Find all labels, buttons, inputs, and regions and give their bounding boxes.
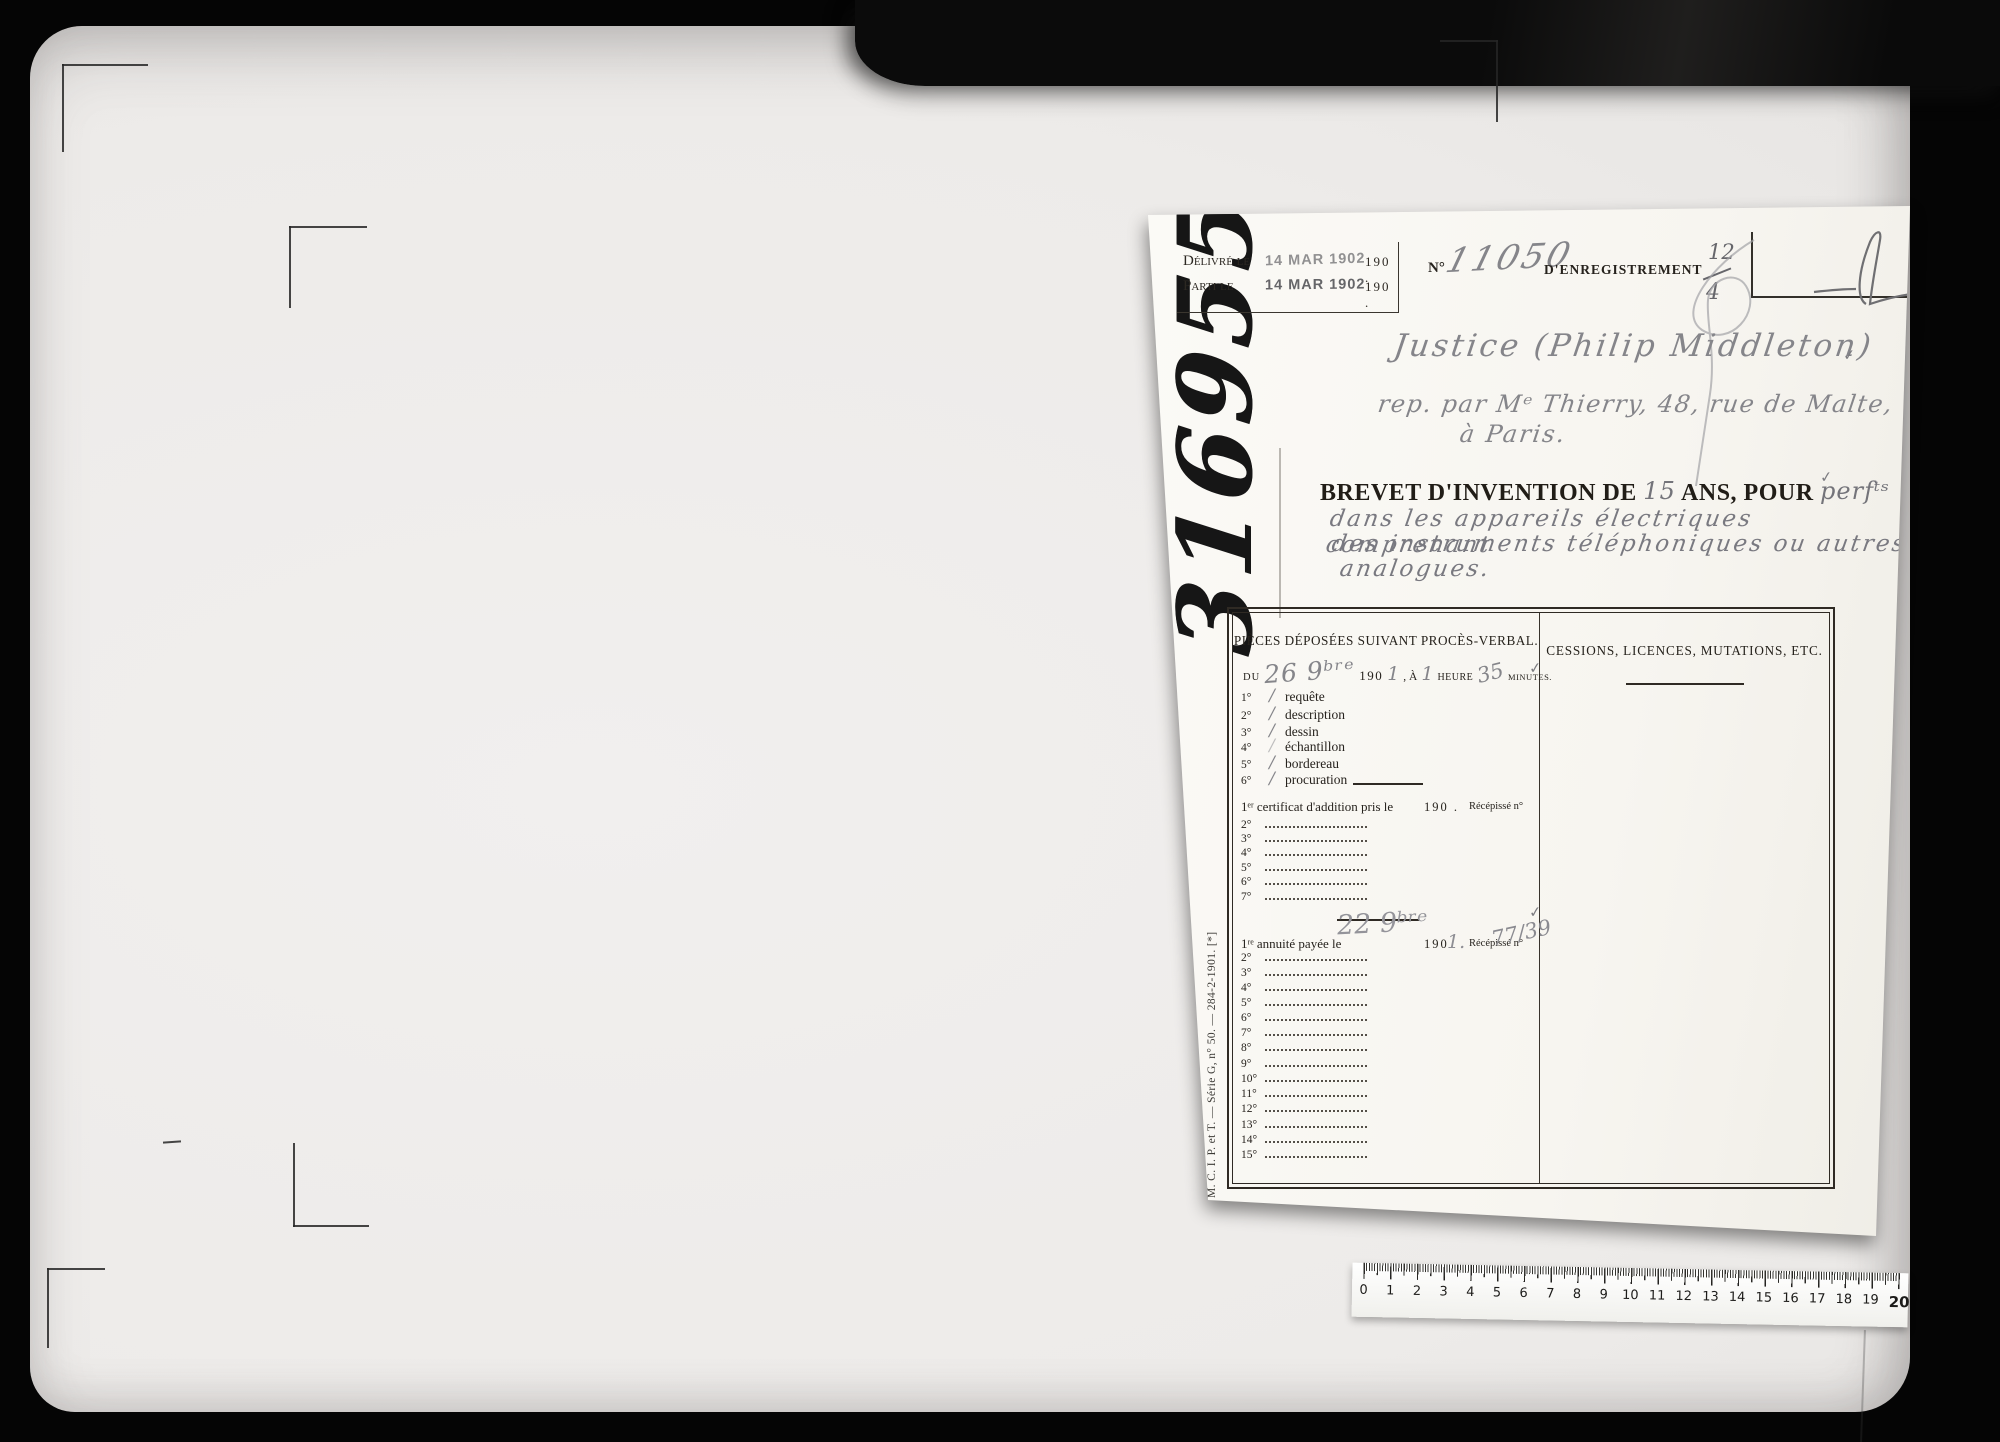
row-number: 7° <box>1241 1027 1261 1039</box>
ruler-number: 1 <box>1382 1283 1399 1301</box>
agent-address-line: rep. par Mᵉ Thierry, 48, rue de Malte, <box>1376 390 1895 418</box>
annuity-dotted-row: 5° <box>1241 997 1367 1009</box>
paper-crease <box>1279 448 1281 618</box>
delivered-row: Délivré le 14 MAR 1902 190 . <box>1177 250 1398 275</box>
row-number: 5° <box>1241 862 1261 874</box>
annuity-dotted-row: 11° <box>1241 1088 1367 1100</box>
row-number: 6° <box>1241 876 1261 888</box>
annuity-dotted-row: 6° <box>1241 1012 1367 1024</box>
ruler-number: 8 <box>1568 1287 1585 1305</box>
year-blank: 190 . <box>1365 279 1398 311</box>
dotted-leader <box>1265 958 1367 961</box>
pieces-header: PIÈCES DÉPOSÉES SUIVANT PROCÈS-VERBAL. <box>1233 633 1539 649</box>
patent-record-card: 316955 M. C. I. P. et T. — Série G, n° 5… <box>1148 206 1914 1240</box>
certificat-dotted-row: 2° <box>1241 819 1367 831</box>
row-number: 5° <box>1241 997 1261 1009</box>
invention-description-line: analogues. <box>1338 556 1493 582</box>
deposit-item-row: 2° / description <box>1241 704 1345 720</box>
registration-mark <box>1440 40 1498 42</box>
ruler-number: 5 <box>1488 1285 1505 1303</box>
brevet-title-line: BREVET D'INVENTION DE 15 ANS, POUR perfᵗ… <box>1320 478 1890 507</box>
heure-label: HEURE <box>1437 672 1473 683</box>
film-frame: 316955 M. C. I. P. et T. — Série G, n° 5… <box>0 0 2000 1442</box>
dotted-leader <box>1265 1125 1367 1128</box>
deposit-date-handwritten: 26 9ᵇʳᵉ <box>1263 654 1356 689</box>
ruler-number: 20 <box>1888 1293 1905 1311</box>
year-digit-handwritten: 1 <box>1387 663 1399 685</box>
ruler-number: 13 <box>1702 1289 1719 1307</box>
dotted-leader <box>1265 1064 1367 1067</box>
delivered-label: Délivré le <box>1183 253 1250 270</box>
row-number: 7° <box>1241 891 1261 903</box>
registration-mark <box>293 1143 295 1227</box>
du-label: DU <box>1243 672 1260 683</box>
ruler-number: 16 <box>1782 1291 1799 1309</box>
annuity-dotted-row: 7° <box>1241 1027 1367 1039</box>
dotted-leader <box>1265 853 1367 856</box>
row-number: 4° <box>1241 982 1261 994</box>
dotted-leader <box>1265 882 1367 885</box>
row-number: 13° <box>1241 1119 1261 1131</box>
annuity-dotted-row: 4° <box>1241 982 1367 994</box>
ruler-number: 12 <box>1675 1289 1692 1307</box>
ruler-number: 6 <box>1515 1286 1532 1304</box>
dotted-leader <box>1265 839 1367 842</box>
ruler-number: 19 <box>1862 1292 1879 1310</box>
certificat-dotted-row: 5° <box>1241 862 1367 874</box>
annuity-dotted-row: 14° <box>1241 1134 1367 1146</box>
ruler-number: 11 <box>1648 1288 1665 1306</box>
dotted-leader <box>1265 1048 1367 1051</box>
cessions-column: CESSIONS, LICENCES, MUTATIONS, ETC. <box>1540 613 1829 685</box>
dotted-leader <box>1265 1079 1367 1082</box>
annuity-dotted-row: 15° <box>1241 1149 1367 1161</box>
subject-abbrev-handwritten: perfᵗˢ <box>1820 477 1890 505</box>
registration-mark <box>47 1268 49 1348</box>
deposit-item-row: 1° / requête <box>1241 686 1325 702</box>
registration-mark <box>1496 40 1498 122</box>
ruler-number: 18 <box>1835 1292 1852 1310</box>
item-label: requête <box>1285 689 1325 705</box>
annuity-dotted-row: 2° <box>1241 952 1367 964</box>
dotted-leader <box>1265 1155 1367 1158</box>
year-printed: 190 . <box>1424 800 1459 815</box>
certificat-dotted-row: 4° <box>1241 847 1367 859</box>
dotted-leader <box>1265 1109 1367 1112</box>
registration-mark <box>62 64 64 152</box>
ruler-number: 10 <box>1622 1288 1639 1306</box>
certificat-dotted-row: 7° <box>1241 891 1367 903</box>
registration-mark <box>289 226 367 228</box>
row-number: 9° <box>1241 1058 1261 1070</box>
row-number: 12° <box>1241 1103 1261 1115</box>
annuity-label: 1ʳᵉ annuité payée le <box>1241 936 1341 952</box>
row-number: 10° <box>1241 1073 1261 1085</box>
cessions-header: CESSIONS, LICENCES, MUTATIONS, ETC. <box>1540 643 1829 659</box>
a-label: , À <box>1403 671 1417 683</box>
certificat-dotted-row: 6° <box>1241 876 1367 888</box>
section-rule <box>1353 783 1423 785</box>
certificat-dotted-row: 3° <box>1241 833 1367 845</box>
invention-description-line: des instruments téléphoniques ou autres <box>1330 531 1908 557</box>
title-mid: ANS, POUR <box>1681 480 1814 506</box>
patentee-name-line: Justice (Philip Middleton) <box>1391 328 1875 364</box>
dotted-leader <box>1265 1140 1367 1143</box>
dotted-leader <box>1265 988 1367 991</box>
dotted-leader <box>1265 1033 1367 1036</box>
ruler-number: 3 <box>1435 1284 1452 1302</box>
year-printed: 190 <box>1424 937 1449 952</box>
duration-handwritten: 15 <box>1643 477 1676 505</box>
registration-mark <box>289 226 291 308</box>
ruler-number: 4 <box>1462 1285 1479 1303</box>
date-stamp: 14 MAR 1902 <box>1265 277 1366 294</box>
row-number: 2° <box>1241 952 1261 964</box>
certificat-label: 1ᵉʳ certificat d'addition pris le <box>1241 799 1393 815</box>
ruler-number: 17 <box>1808 1291 1825 1309</box>
delivery-stamp-box: Délivré le 14 MAR 1902 190 . Parti le 14… <box>1177 242 1399 313</box>
row-number: 3° <box>1241 833 1261 845</box>
row-number: 11° <box>1241 1088 1261 1100</box>
dotted-leader <box>1265 825 1367 828</box>
ruler-number: 7 <box>1542 1286 1559 1304</box>
ruler-number: 15 <box>1755 1290 1772 1308</box>
form-series-imprint: M. C. I. P. et T. — Série G, n° 50. — 28… <box>1206 931 1218 1198</box>
ruler-number: 14 <box>1728 1290 1745 1308</box>
annuity-dotted-row: 12° <box>1241 1103 1367 1115</box>
dotted-leader <box>1265 1018 1367 1021</box>
annuity-dotted-row: 3° <box>1241 967 1367 979</box>
column-divider <box>1539 613 1540 1183</box>
row-number: 2° <box>1241 819 1261 831</box>
certificat-line: 1ᵉʳ certificat d'addition pris le 190 . … <box>1241 799 1533 817</box>
deposit-item-row: 5° / bordereau <box>1241 753 1339 769</box>
cessions-rule <box>1626 683 1744 685</box>
dotted-leader <box>1265 1094 1367 1097</box>
deposit-item-row: 3° / dessin <box>1241 721 1319 737</box>
dotted-leader <box>1265 868 1367 871</box>
ruler-number: 9 <box>1595 1287 1612 1305</box>
annuity-dotted-row: 13° <box>1241 1119 1367 1131</box>
row-number: 8° <box>1241 1042 1261 1054</box>
hour-handwritten: 1 <box>1421 663 1433 685</box>
proces-verbal-date-line: DU 26 9ᵇʳᵉ 190 1 , À 1 HEURE 35 MINUTES. <box>1243 657 1537 686</box>
recepisse-label: Récépissé n° <box>1469 801 1523 812</box>
pencil-loop-mark <box>1658 234 1798 494</box>
item-label: procuration <box>1285 772 1347 788</box>
dotted-leader <box>1265 973 1367 976</box>
item-number: 1° <box>1241 692 1261 704</box>
row-number: 14° <box>1241 1134 1261 1146</box>
deposit-table: PIÈCES DÉPOSÉES SUIVANT PROCÈS-VERBAL. D… <box>1232 612 1830 1184</box>
measurement-ruler: 0 1 2 3 4 5 6 7 8 9 10 11 12 13 14 15 16… <box>1352 1263 1909 1328</box>
item-tick-handwritten: / <box>1261 686 1283 706</box>
row-number: 6° <box>1241 1012 1261 1024</box>
registration-mark <box>47 1268 105 1270</box>
city-line: à Paris. <box>1458 420 1568 448</box>
annuity-dotted-row: 9° <box>1241 1058 1367 1070</box>
ruler-number: 0 <box>1355 1283 1372 1301</box>
dotted-leader <box>1265 1003 1367 1006</box>
departed-label: Parti le <box>1183 278 1234 295</box>
ruler-number: 2 <box>1408 1284 1425 1302</box>
row-number: 15° <box>1241 1149 1261 1161</box>
title-prefix: BREVET D'INVENTION DE <box>1320 480 1637 506</box>
minutes-handwritten: 35 <box>1475 658 1507 688</box>
item-number: 6° <box>1241 775 1261 787</box>
annuity-year-digit-handwritten: 1. <box>1447 931 1465 953</box>
registration-mark <box>62 64 148 66</box>
departed-row: Parti le 14 MAR 1902 190 . <box>1177 275 1398 300</box>
annuity-dotted-row: 10° <box>1241 1073 1367 1085</box>
item-tick-handwritten: / <box>1261 769 1283 789</box>
year-printed: 190 <box>1359 668 1383 684</box>
deposit-item-row: 4° / échantillon <box>1241 736 1345 752</box>
film-top-band <box>855 0 2000 86</box>
dotted-leader <box>1265 897 1367 900</box>
pencil-a-mark <box>1812 220 1922 320</box>
registration-mark <box>293 1225 369 1227</box>
row-number: 4° <box>1241 847 1261 859</box>
deposit-item-row: 6° / procuration <box>1241 769 1347 785</box>
date-stamp: 14 MAR 1902 <box>1265 251 1366 270</box>
check-mark: ✓ <box>1842 345 1856 364</box>
annuity-dotted-row: 8° <box>1241 1042 1367 1054</box>
row-number: 3° <box>1241 967 1261 979</box>
